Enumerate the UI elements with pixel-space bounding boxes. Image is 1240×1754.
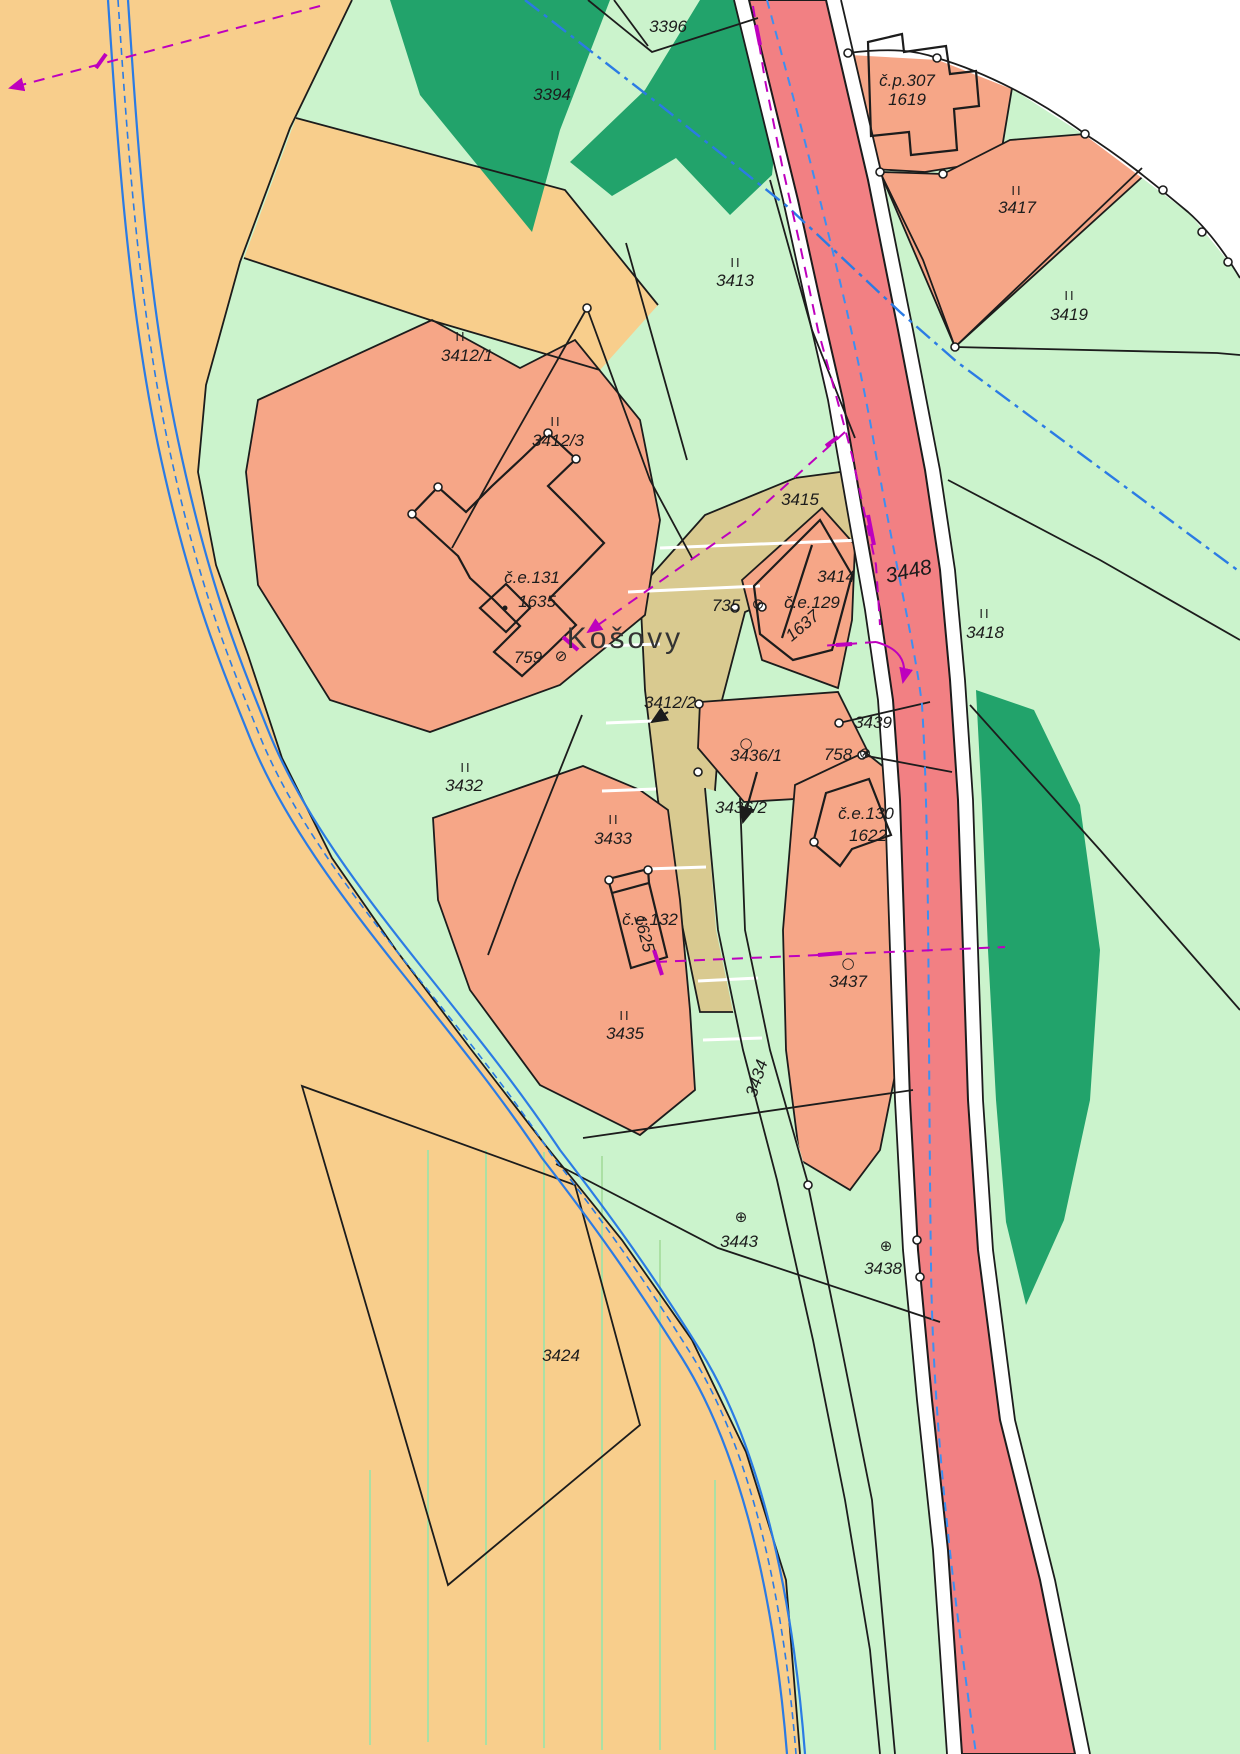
parcel-1622: 1622 — [849, 826, 887, 845]
class-ii-3394: II — [550, 68, 561, 83]
house-cp307: č.p.307 — [879, 71, 935, 90]
cadastral-map[interactable]: 3396II3394č.p.3071619II3417II3419II3413I… — [0, 0, 1240, 1754]
parcel-3443: 3443 — [720, 1232, 758, 1251]
parcel-3436-1: 3436/1 — [730, 746, 782, 765]
cadastral-map-viewport[interactable]: 3396II3394č.p.3071619II3417II3419II3413I… — [0, 0, 1240, 1754]
place-kosovy: Košovy — [567, 622, 683, 655]
parcel-3438: 3438 — [864, 1259, 902, 1278]
house-ce130: č.e.130 — [838, 804, 894, 823]
symbol-758: ⊘ — [859, 744, 872, 762]
symbol-3437: ○ — [841, 954, 854, 972]
parcel-759: 759 — [514, 648, 543, 667]
parcel-1635: 1635 — [518, 592, 556, 611]
class-ii-3418: II — [979, 606, 990, 621]
parcel-3418: 3418 — [966, 623, 1004, 642]
parcel-3412-3: 3412/3 — [532, 431, 585, 450]
parcel-3394: 3394 — [533, 85, 571, 104]
house-ce131: č.e.131 — [504, 568, 560, 587]
parcel-3419: 3419 — [1050, 305, 1088, 324]
parcel-3435: 3435 — [606, 1024, 644, 1043]
parcel-735: 735 — [712, 596, 741, 615]
symbol-3443: ⊕ — [735, 1208, 748, 1226]
parcel-3424: 3424 — [542, 1346, 580, 1365]
class-ii-3412-1: II — [455, 329, 466, 344]
building-ce131-annex-dot — [503, 606, 508, 611]
parcel-3437: 3437 — [829, 972, 867, 991]
parcel-3417: 3417 — [998, 198, 1036, 217]
class-ii-3413: II — [730, 255, 741, 270]
parcel-758: 758 — [824, 745, 853, 764]
symbol-735: ⊘ — [752, 595, 765, 613]
parcel-3439: 3439 — [854, 713, 892, 732]
parcel-3412-2: 3412/2 — [644, 693, 697, 712]
parcel-3415: 3415 — [781, 490, 819, 509]
class-ii-3435: II — [619, 1008, 630, 1023]
class-ii-3417: II — [1011, 183, 1022, 198]
parcel-3436-2: 3436/2 — [715, 798, 768, 817]
parcel-3413: 3413 — [716, 271, 754, 290]
parcel-3412-1: 3412/1 — [441, 346, 493, 365]
class-ii-3419: II — [1064, 288, 1075, 303]
symbol-759: ⊘ — [555, 647, 568, 665]
parcel-3414: 3414 — [817, 567, 855, 586]
class-ii-3432: II — [460, 760, 471, 775]
symbol-3438: ⊕ — [880, 1237, 893, 1255]
parcel-3432: 3432 — [445, 776, 483, 795]
class-ii-3412-3: II — [550, 414, 561, 429]
parcel-3433: 3433 — [594, 829, 632, 848]
parcel-3396: 3396 — [649, 17, 687, 36]
class-ii-3433: II — [608, 812, 619, 827]
parcel-1619: 1619 — [888, 90, 926, 109]
